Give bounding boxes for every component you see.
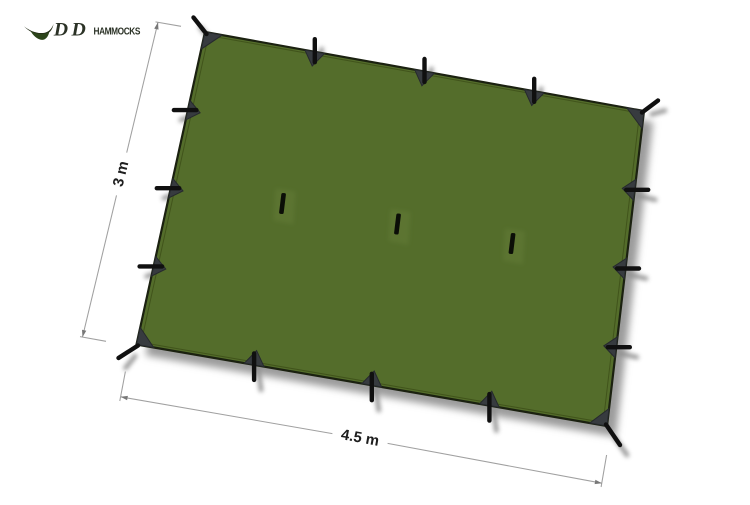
svg-text:HAMMOCKS: HAMMOCKS — [94, 27, 141, 38]
svg-text:DD: DD — [53, 19, 89, 40]
